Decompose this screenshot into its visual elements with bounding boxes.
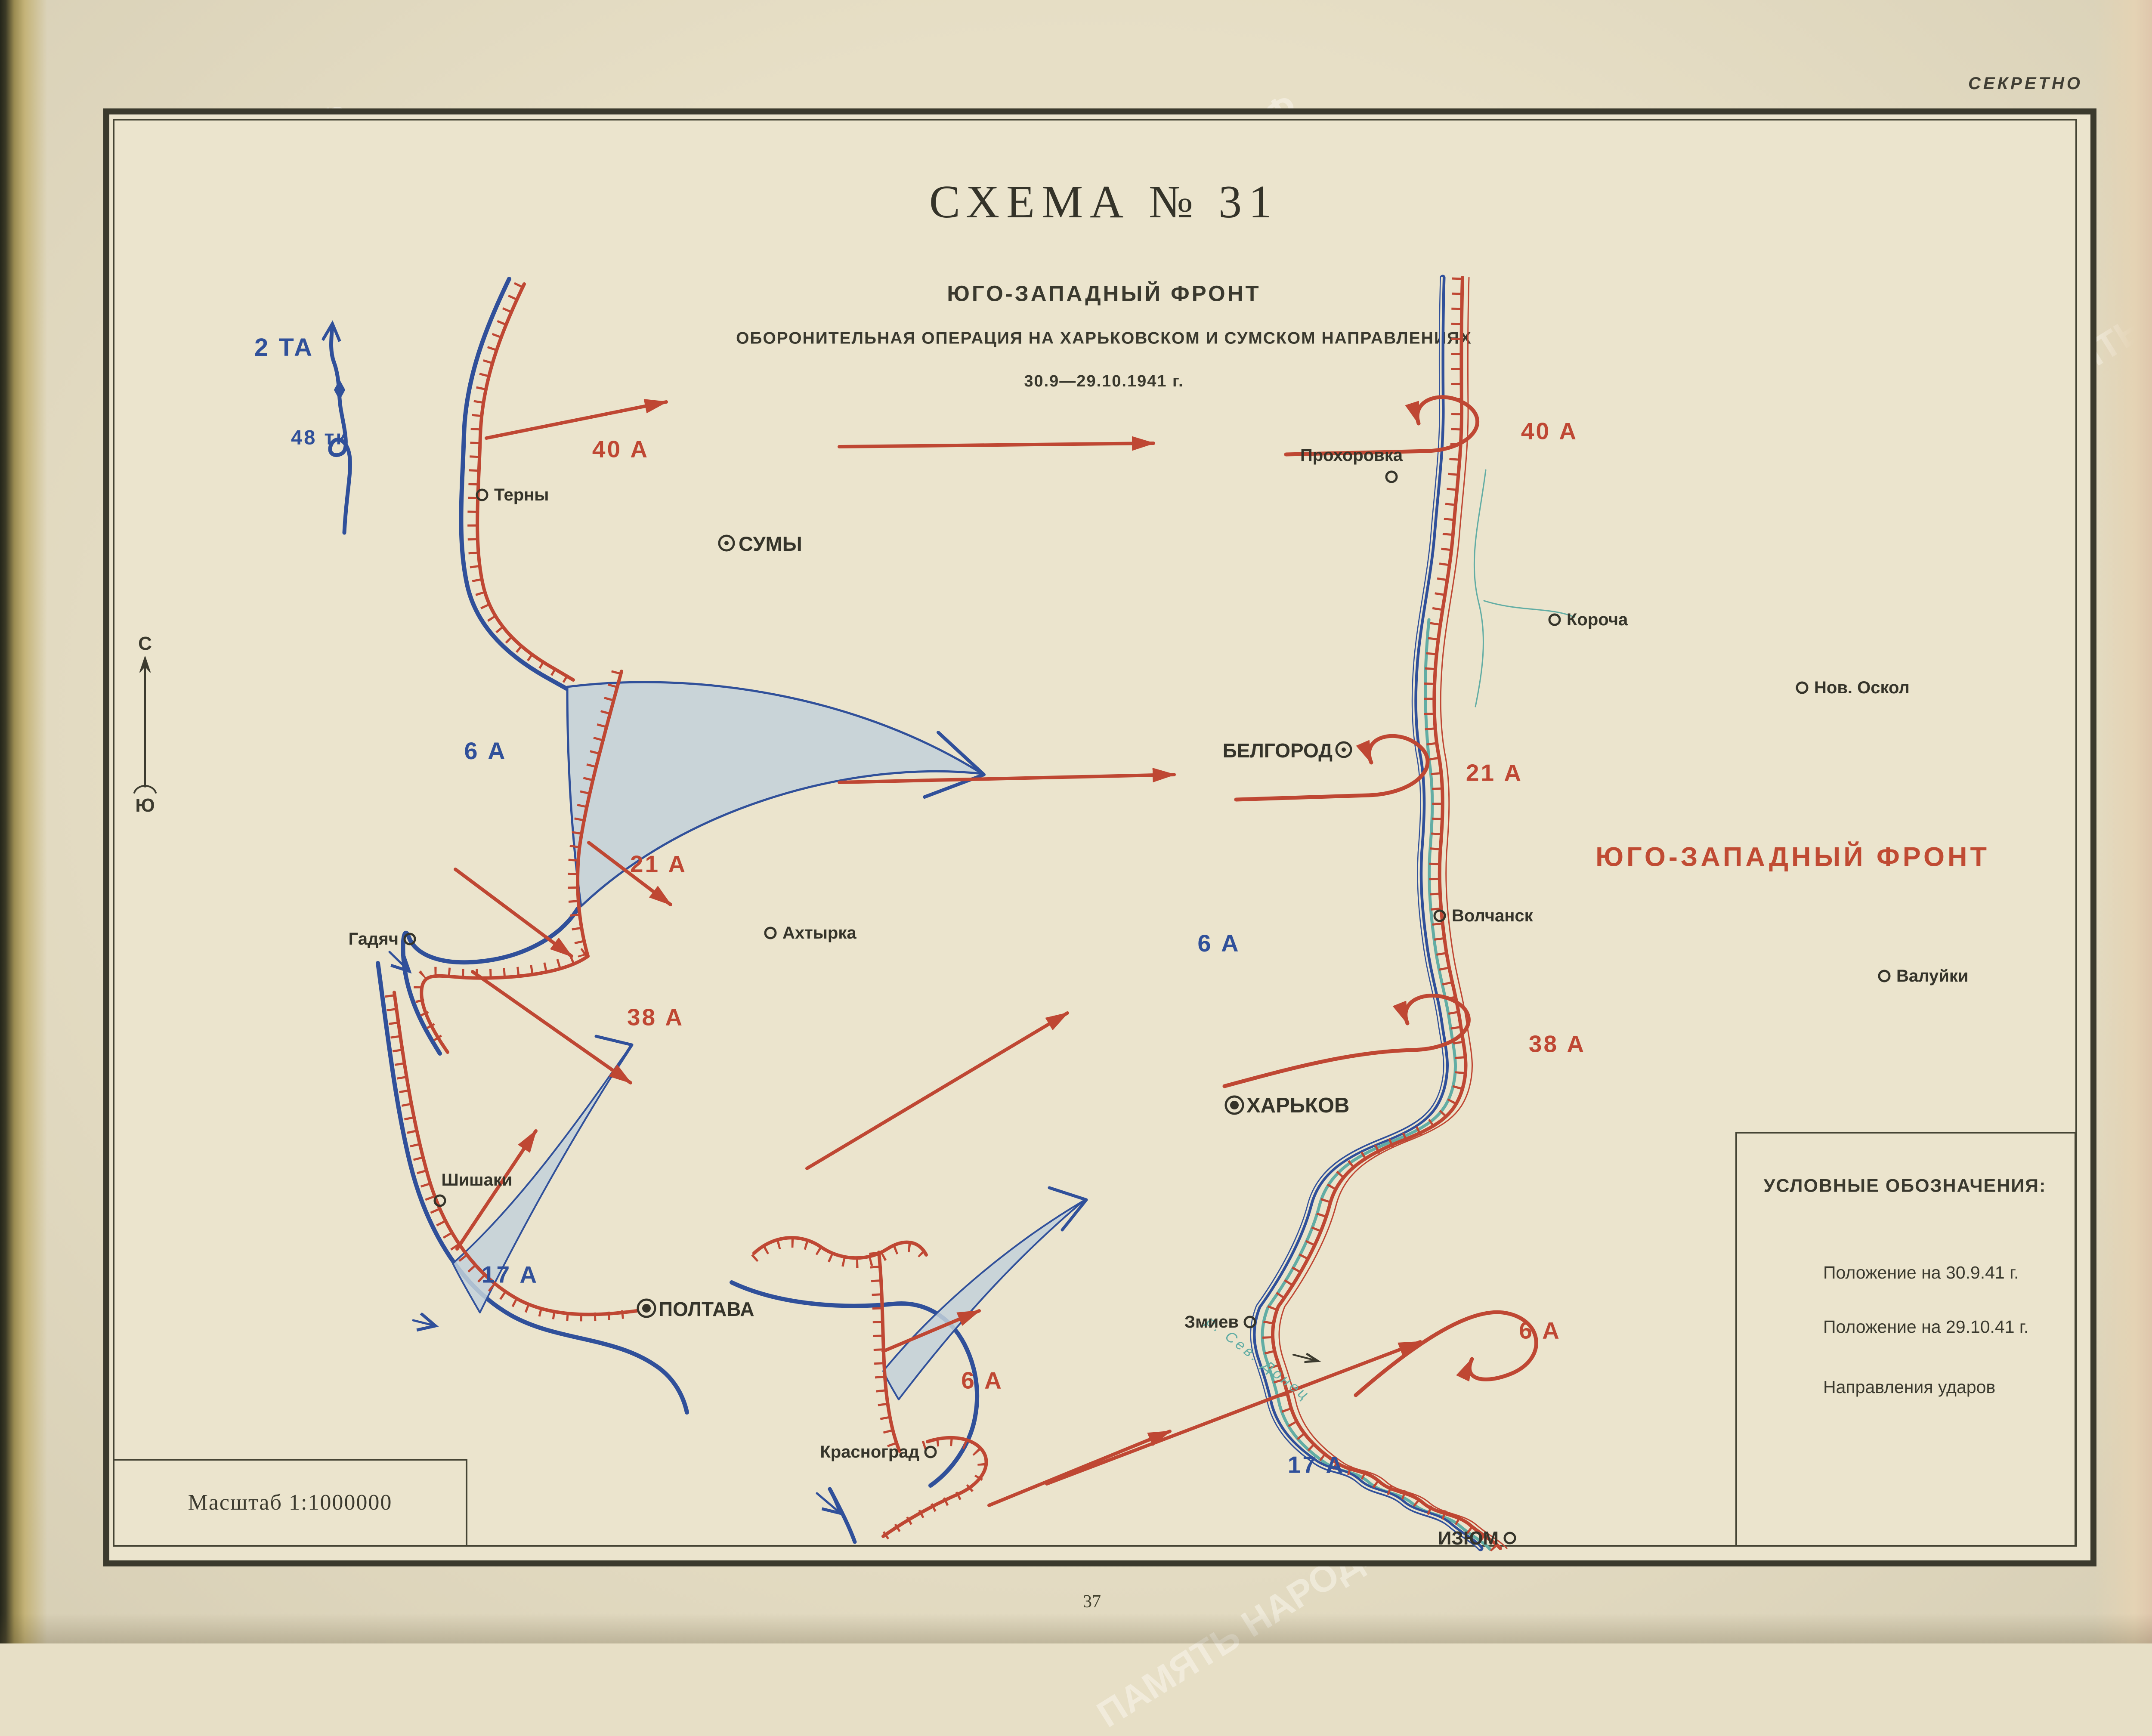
city-label-11: Гадяч [349,930,399,949]
city-label-14: ПОЛТАВА [659,1297,754,1321]
army-label-soviet-7: 6 А [961,1369,1003,1393]
city-label-5: Нов. Оскол [1814,678,1910,698]
army-label-soviet-6: 38 А [1529,1032,1586,1056]
front-line-red-soviet [389,278,1507,1548]
scanned-map-page: { "page": { "classification": "СЕКРЕТНО"… [0,0,2152,1643]
city-label-1: Терны [494,485,549,505]
city-label-7: Волчанск [1452,906,1533,926]
scale-box: Масштаб 1:1000000 [113,1459,467,1547]
city-label-15: Красноград [820,1443,919,1462]
army-label-german-6: 17 А [1288,1453,1345,1477]
legend-item-position-30-9: Положение на 30.9.41 г. [1823,1263,2019,1283]
compass-rose [134,657,156,793]
front-name-label: ЮГО-ЗАПАДНЫЙ ФРОНТ [1595,844,1990,871]
strike-wedges [330,325,1086,1399]
city-label-2: СУМЫ [739,532,802,556]
army-label-german-4: 6 А [1197,931,1240,955]
scale-label: Масштаб 1:1000000 [188,1492,393,1514]
compass-north-label: С [138,634,152,653]
army-label-soviet-1: 40 А [592,438,649,461]
legend-box: УСЛОВНЫЕ ОБОЗНАЧЕНИЯ: Положение на 30.9.… [1735,1132,2076,1547]
city-label-4: Короча [1567,610,1628,630]
city-label-10: Змиев [1184,1313,1239,1332]
legend-item-position-29-10: Положение на 29.10.41 г. [1823,1317,2028,1337]
army-label-soviet-5: 38 А [627,1006,684,1029]
city-label-13: Шишаки [442,1171,513,1190]
legend-heading: УСЛОВНЫЕ ОБОЗНАЧЕНИЯ: [1764,1177,2047,1195]
army-label-soviet-8: 6 А [1519,1319,1561,1343]
army-label-german-5: 17 А [482,1263,538,1287]
army-label-german-2: 48 тк [291,427,348,448]
army-label-soviet-3: 21 А [630,853,687,876]
legend-item-strike-directions: Направления ударов [1823,1377,1995,1397]
city-label-3: Прохоровка [1300,446,1403,465]
army-label-soviet-2: 40 А [1521,420,1578,443]
city-label-12: Ахтырка [782,924,856,943]
city-label-16: ИЗЮМ [1438,1528,1499,1549]
city-label-9: ХАРЬКОВ [1246,1093,1349,1118]
compass-south-label: Ю [135,796,155,815]
army-label-german-1: 2 ТА [254,335,314,360]
army-label-soviet-4: 21 А [1466,761,1523,785]
page-number: 37 [1083,1593,1101,1611]
city-label-8: Валуйки [1896,967,1968,986]
city-label-6: БЕЛГОРОД [1223,739,1333,762]
army-label-german-3: 6 А [464,739,507,763]
